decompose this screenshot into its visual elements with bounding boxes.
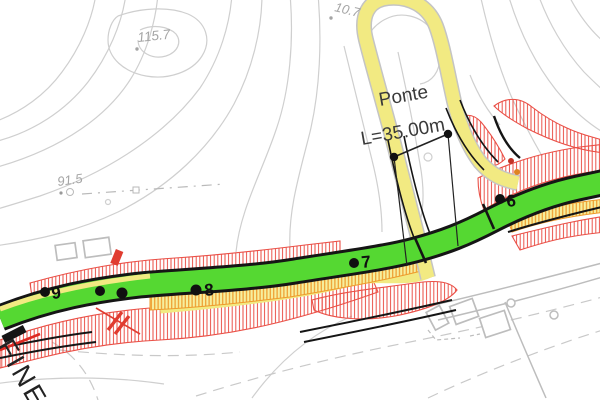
- road-plan-drawing: Ponte L=35.00m 115.7 91.5 10.7 FINE 6 7 …: [0, 0, 600, 400]
- stake-number: 8: [203, 280, 214, 300]
- track-gray: [430, 262, 600, 398]
- elevation-label-107: 10.7: [333, 0, 362, 20]
- bridge-length-label: L=35.00m: [359, 114, 446, 149]
- cad-plan-canvas[interactable]: Ponte L=35.00m 115.7 91.5 10.7 FINE 6 7 …: [0, 0, 600, 400]
- stake-number: 6: [505, 191, 516, 211]
- elevation-label-915: 91.5: [56, 170, 84, 188]
- stake-number: 9: [50, 283, 61, 303]
- elevation-label-1157: 115.7: [137, 27, 172, 45]
- boundary-line: [59, 184, 225, 196]
- elevation-point-107: [329, 16, 332, 19]
- elevation-point-1157: [135, 47, 138, 50]
- stake-number: 7: [360, 252, 371, 272]
